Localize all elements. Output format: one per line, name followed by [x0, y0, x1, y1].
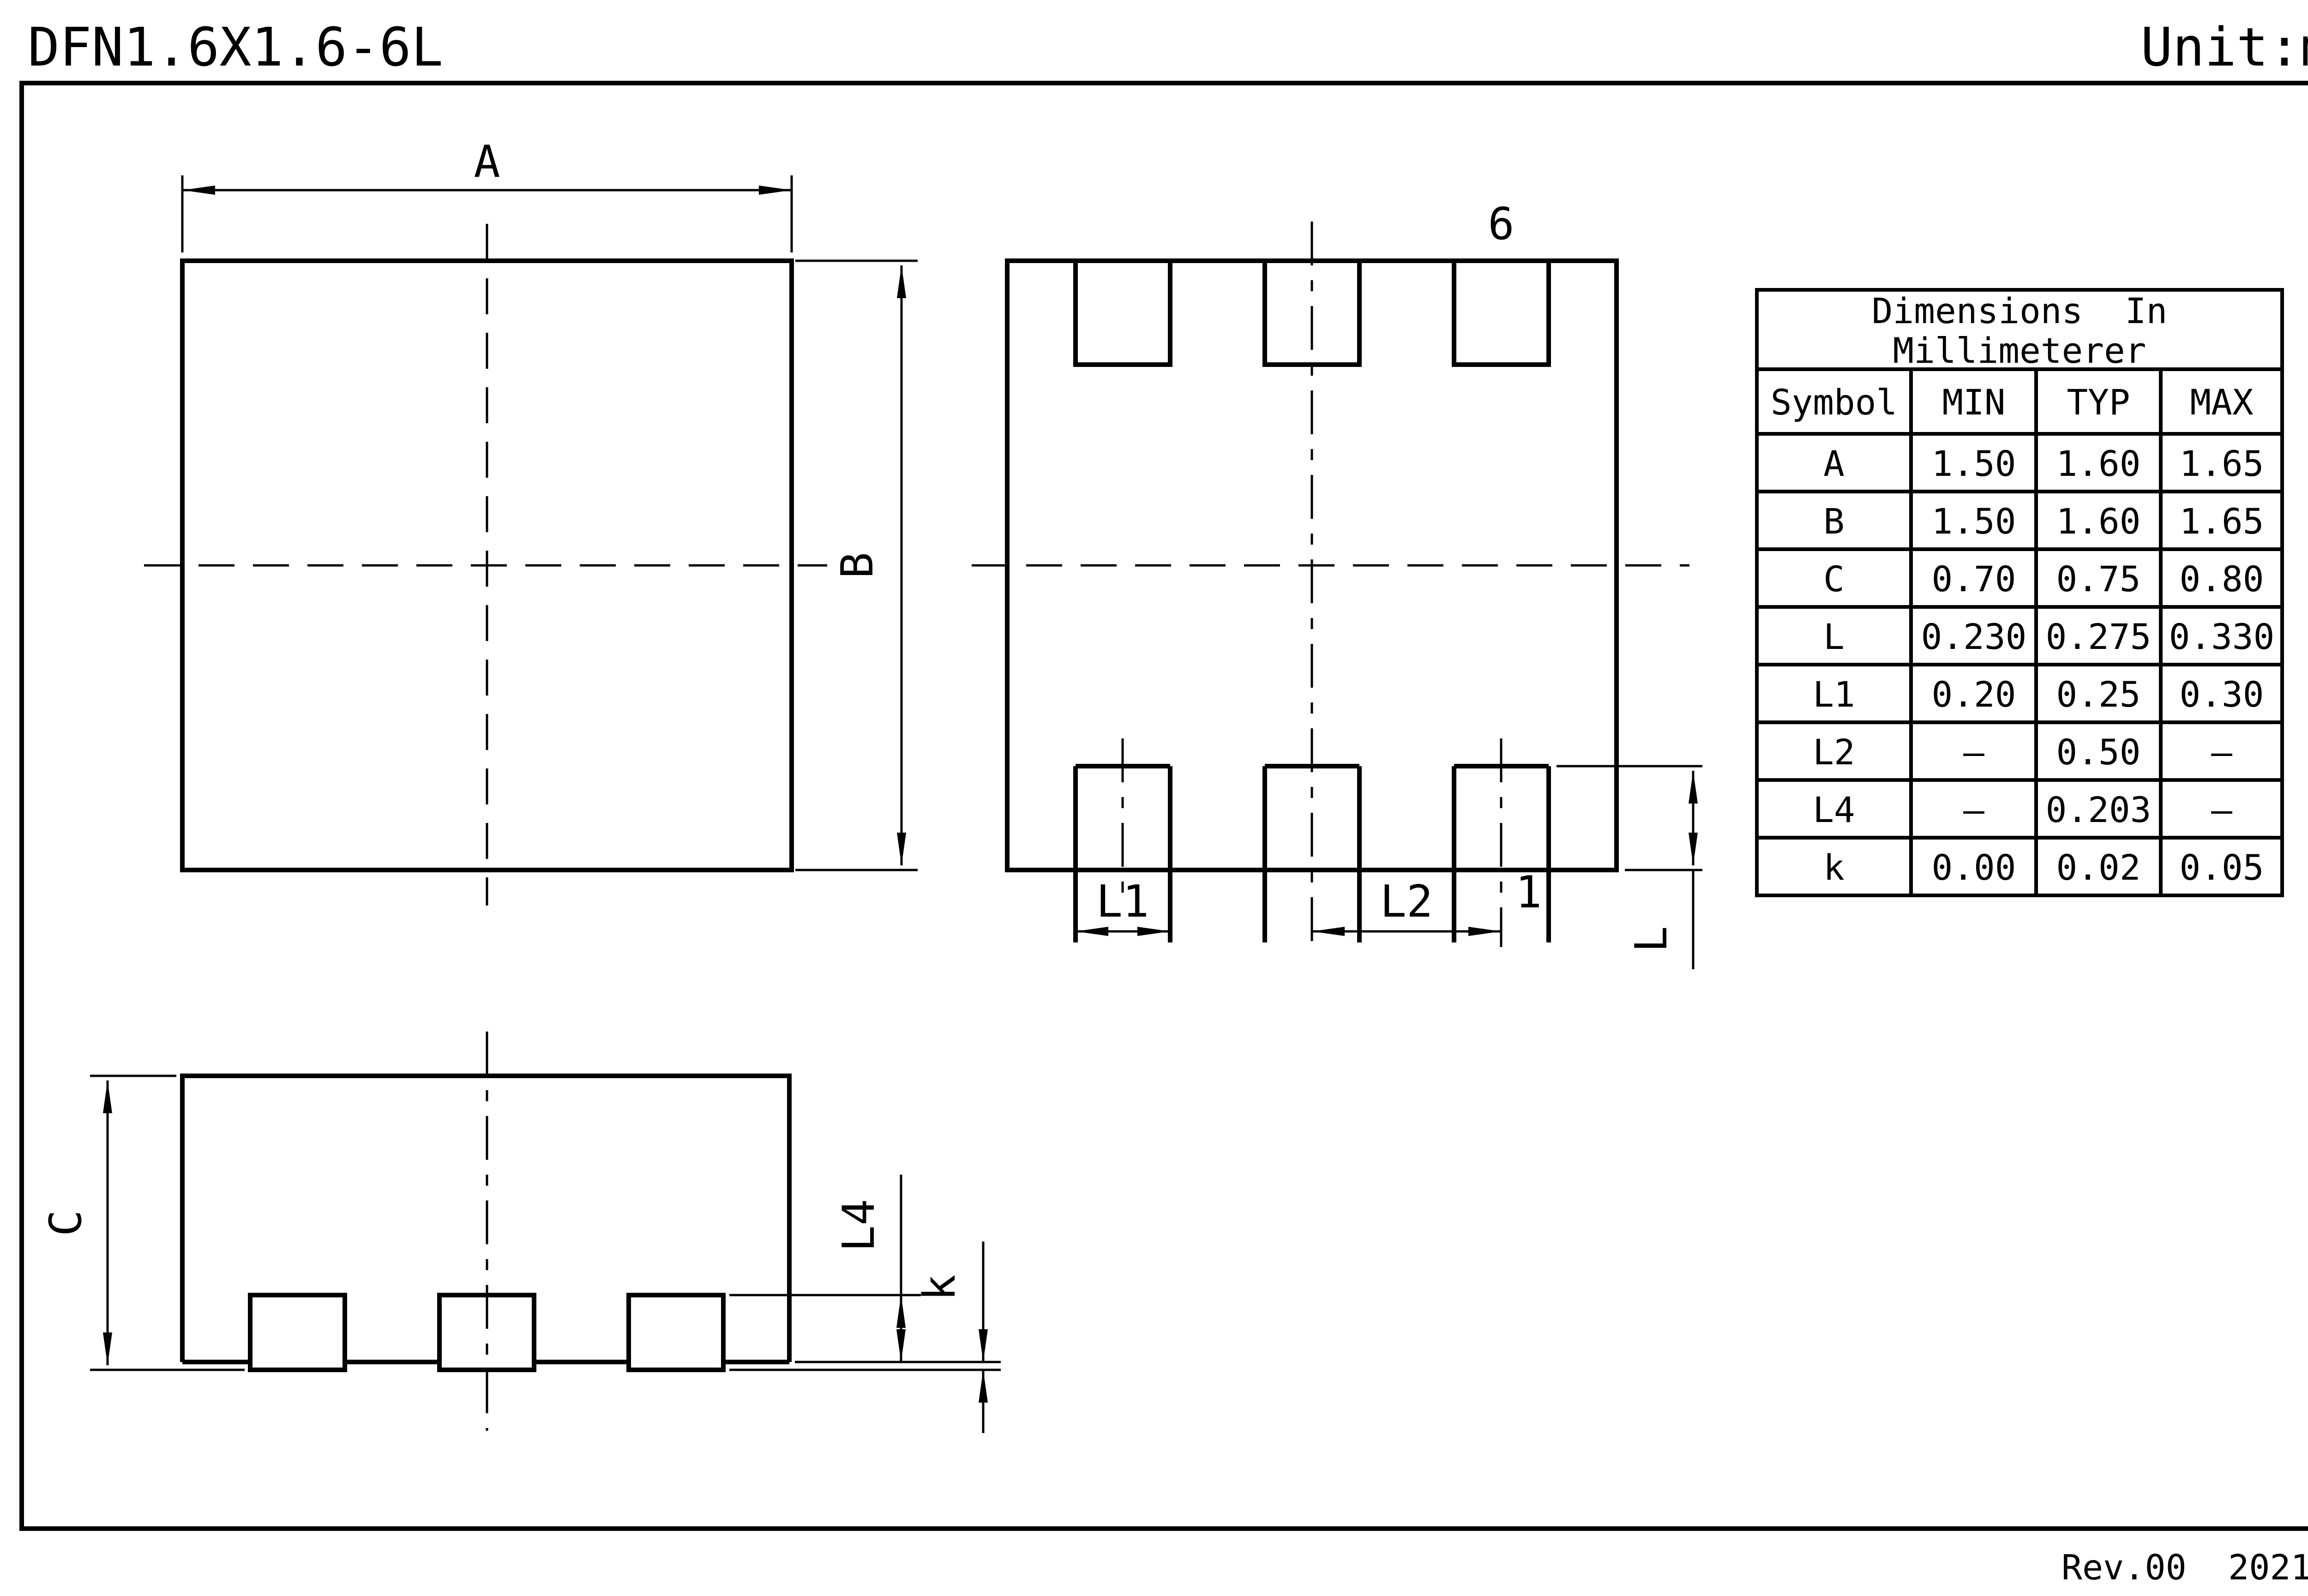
table-header-typ: TYP	[2067, 382, 2130, 423]
revision-label: Rev.00 202107	[2062, 1547, 2308, 1588]
svg-text:C: C	[1823, 558, 1845, 600]
dim-A-label: A	[474, 137, 500, 187]
svg-text:1.50: 1.50	[1931, 501, 2016, 542]
svg-text:–: –	[2211, 732, 2232, 773]
unit-label: Unit:mm	[2140, 17, 2308, 78]
svg-text:0.30: 0.30	[2179, 674, 2264, 715]
dimensions-table: Dimensions In Millimeterer Symbol MIN TY…	[1757, 290, 2282, 895]
svg-text:0.330: 0.330	[2169, 616, 2275, 657]
table-title-line2: Millimeterer	[1893, 330, 2146, 371]
svg-text:k: k	[1823, 847, 1845, 888]
dim-L4-label: L4	[834, 1199, 884, 1252]
bottom-view: 6 1 L1 L2 L	[972, 199, 1702, 969]
dim-C-label: C	[41, 1210, 91, 1236]
pin-6-label: 6	[1488, 199, 1514, 250]
svg-text:0.70: 0.70	[1931, 558, 2016, 600]
dim-L-label: L	[1626, 926, 1677, 952]
svg-text:1.60: 1.60	[2056, 443, 2140, 484]
svg-text:1.65: 1.65	[2179, 443, 2264, 484]
table-row: L 0.230 0.275 0.330	[1823, 616, 2274, 657]
svg-text:B: B	[1823, 501, 1845, 542]
top-view: A B	[144, 137, 918, 906]
pad-top-right	[1454, 261, 1549, 365]
table-row: L4 – 0.203 –	[1813, 789, 2232, 830]
table-row: A 1.50 1.60 1.65	[1823, 443, 2264, 484]
svg-text:0.80: 0.80	[2179, 558, 2264, 600]
svg-text:L2: L2	[1813, 732, 1855, 773]
svg-text:0.25: 0.25	[2056, 674, 2140, 715]
svg-text:1.65: 1.65	[2179, 501, 2264, 542]
svg-text:0.02: 0.02	[2056, 847, 2140, 888]
table-header-min: MIN	[1942, 382, 2005, 423]
table-row: B 1.50 1.60 1.65	[1823, 501, 2264, 542]
svg-text:L4: L4	[1813, 789, 1855, 830]
svg-text:L1: L1	[1813, 674, 1855, 715]
dim-L1-label: L1	[1096, 876, 1149, 927]
svg-text:–: –	[1963, 789, 1984, 830]
table-row: L1 0.20 0.25 0.30	[1813, 674, 2264, 715]
svg-text:0.20: 0.20	[1931, 674, 2016, 715]
svg-text:0.203: 0.203	[2046, 789, 2152, 830]
svg-text:0.00: 0.00	[1931, 847, 2016, 888]
pin-1-label: 1	[1515, 867, 1542, 918]
svg-text:0.05: 0.05	[2179, 847, 2264, 888]
dim-k-label: k	[914, 1274, 965, 1301]
svg-text:0.275: 0.275	[2046, 616, 2152, 657]
drawing-sheet: DFN1.6X1.6-6L Unit:mm Rev.00 202107 A B	[0, 0, 2308, 1596]
dim-B-label: B	[832, 552, 883, 578]
pad-top-left	[1076, 261, 1170, 365]
svg-text:1.60: 1.60	[2056, 501, 2140, 542]
dim-L2-label: L2	[1380, 876, 1433, 927]
dim-k: k	[729, 1242, 1001, 1433]
dim-C: C	[41, 1076, 245, 1370]
svg-text:–: –	[1963, 732, 1984, 773]
side-view: C L4 k	[41, 1032, 1001, 1433]
lead-right	[629, 1295, 723, 1370]
svg-text:L: L	[1823, 616, 1845, 657]
table-row: k 0.00 0.02 0.05	[1823, 847, 2264, 888]
table-header-max: MAX	[2190, 382, 2254, 423]
table-row: C 0.70 0.75 0.80	[1823, 558, 2264, 600]
svg-text:1.50: 1.50	[1931, 443, 2016, 484]
lead-left	[250, 1295, 345, 1370]
svg-text:0.230: 0.230	[1921, 616, 2027, 657]
svg-text:0.50: 0.50	[2056, 732, 2140, 773]
table-title-line1: Dimensions In	[1872, 290, 2168, 331]
svg-text:0.75: 0.75	[2056, 558, 2140, 600]
svg-text:–: –	[2211, 789, 2232, 830]
dim-L1: L1	[1076, 876, 1170, 931]
svg-text:A: A	[1823, 443, 1845, 484]
dim-L4: L4	[729, 1175, 921, 1362]
table-header-symbol: Symbol	[1771, 382, 1898, 423]
table-row: L2 – 0.50 –	[1813, 732, 2232, 773]
dim-L2: L2	[1312, 876, 1501, 931]
drawing-title: DFN1.6X1.6-6L	[28, 17, 443, 78]
